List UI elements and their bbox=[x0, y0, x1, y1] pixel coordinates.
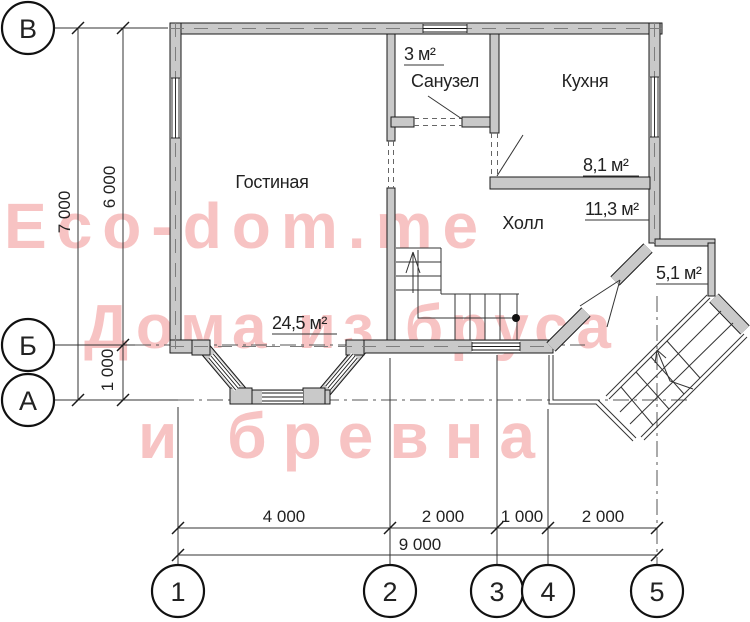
axis-label-row-B2: Б bbox=[19, 331, 37, 361]
dim-h-3: 1 000 bbox=[501, 507, 544, 526]
dim-h-1: 4 000 bbox=[263, 507, 306, 526]
room-label-hall: Холл bbox=[502, 213, 543, 233]
area-label-bath: 3 м² bbox=[404, 44, 436, 64]
stair-handrail bbox=[418, 250, 516, 318]
window-bay-right bbox=[326, 354, 358, 390]
dim-vertical-lower: 1 000 bbox=[98, 349, 117, 392]
room-label-kitchen: Кухня bbox=[562, 71, 609, 91]
stair-newel-post bbox=[512, 314, 520, 322]
floor-plan-drawing: В Б А 1 2 3 4 5 7 000 6 000 1 000 4 000 … bbox=[0, 0, 750, 622]
dim-h-4: 2 000 bbox=[582, 507, 625, 526]
window-bay-bottom bbox=[262, 391, 303, 403]
dim-vertical-upper: 6 000 bbox=[100, 166, 119, 209]
area-label-porch: 5,1 м² bbox=[656, 263, 702, 283]
axis-label-col-4: 4 bbox=[540, 577, 555, 607]
dim-h-total: 9 000 bbox=[399, 535, 442, 554]
window-left bbox=[171, 78, 180, 138]
window-hall bbox=[472, 341, 520, 352]
porch-edge-inner bbox=[553, 355, 636, 438]
dimension-lines bbox=[55, 22, 692, 564]
area-label-living: 24,5 м² bbox=[272, 313, 327, 333]
axis-label-row-A: А bbox=[19, 386, 37, 416]
axis-label-row-B: В bbox=[19, 14, 37, 44]
bathroom-door-leaf bbox=[428, 96, 462, 119]
window-bay-left bbox=[209, 354, 241, 390]
window-top bbox=[423, 24, 467, 33]
interior-stair bbox=[396, 248, 520, 340]
axis-label-col-2: 2 bbox=[382, 577, 397, 607]
room-label-bath: Санузел bbox=[411, 71, 479, 91]
dim-h-2: 2 000 bbox=[422, 507, 465, 526]
room-label-living: Гостиная bbox=[235, 172, 308, 192]
axis-label-col-1: 1 bbox=[170, 577, 185, 607]
porch-edge-outer bbox=[549, 355, 633, 441]
axis-label-col-3: 3 bbox=[489, 577, 504, 607]
dimension-ticks bbox=[72, 22, 663, 561]
kitchen-door-leaf bbox=[497, 135, 523, 176]
area-label-hall: 11,3 м² bbox=[585, 199, 639, 219]
dim-vertical-total: 7 000 bbox=[55, 191, 74, 234]
axis-label-col-5: 5 bbox=[649, 577, 664, 607]
window-right bbox=[650, 77, 659, 137]
area-label-kitchen: 8,1 м² bbox=[583, 155, 629, 175]
floor-plan-page: Eco-dom.me Дома из бруса и бревна bbox=[0, 0, 750, 622]
